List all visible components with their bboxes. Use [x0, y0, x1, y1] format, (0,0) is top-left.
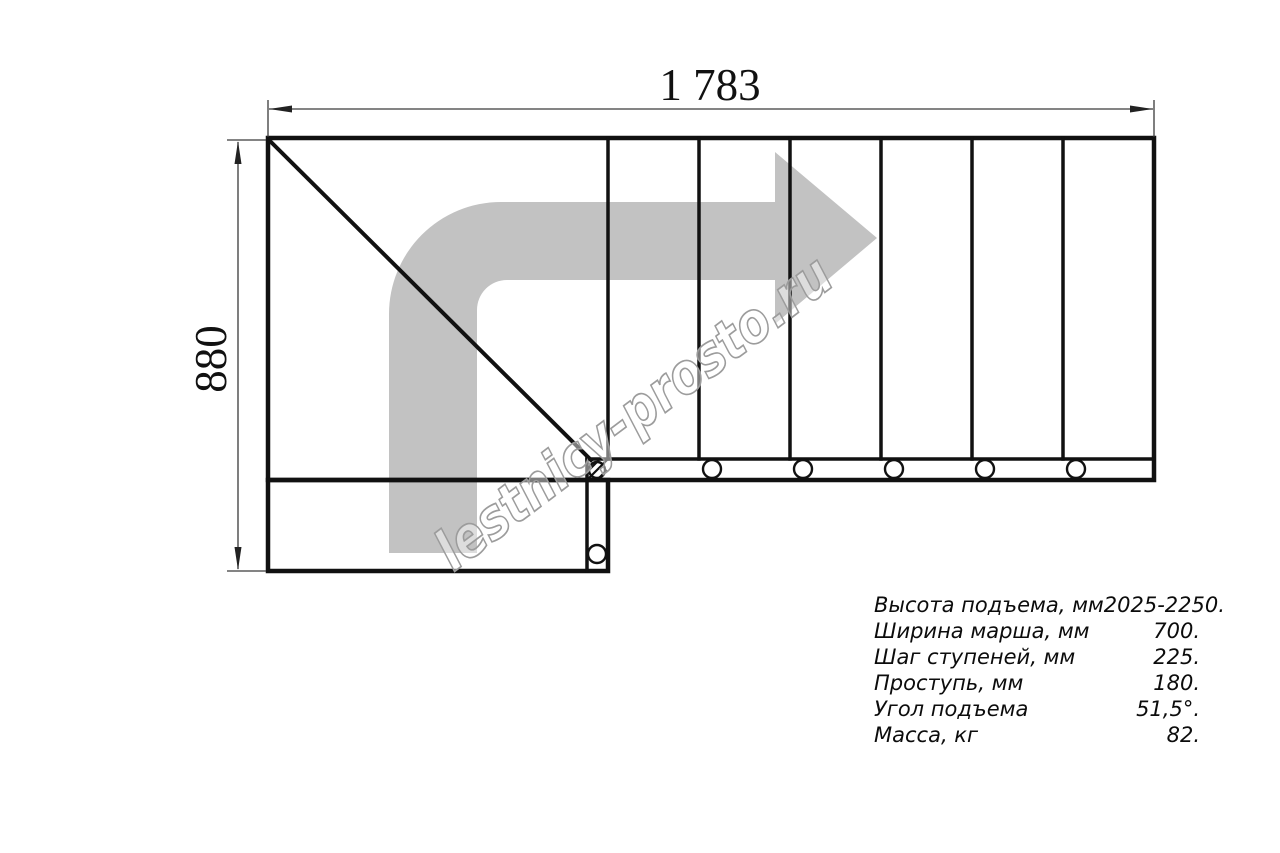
width-dimension-label: 1 783	[659, 60, 760, 110]
spec-row: Проступь, мм 180.	[874, 670, 1200, 696]
spec-row: Масса, кг 82.	[874, 722, 1200, 748]
spec-row: Шаг ступеней, мм 225.	[874, 644, 1200, 670]
spec-label: Шаг ступеней, мм	[874, 644, 1075, 670]
baluster-circle	[588, 545, 606, 563]
baluster-circles	[588, 460, 1085, 563]
baluster-circle	[885, 460, 903, 478]
baluster-circle	[794, 460, 812, 478]
spec-label: Угол подъема	[874, 696, 1028, 722]
spec-label: Проступь, мм	[874, 670, 1023, 696]
spec-table: Высота подъема, мм 2025-2250. Ширина мар…	[874, 592, 1200, 748]
dim-arrow-top	[235, 141, 242, 164]
baluster-circle	[1067, 460, 1085, 478]
dim-arrow-left	[269, 106, 292, 113]
stair-drawing-page: 1 783 880 lestnicy-prosto.ru Высота подъ…	[0, 0, 1280, 853]
spec-label: Высота подъема, мм	[874, 592, 1104, 618]
spec-row: Угол подъема 51,5°.	[874, 696, 1200, 722]
spec-value: 51,5°.	[1136, 696, 1200, 722]
baluster-circle	[976, 460, 994, 478]
direction-arrow	[389, 152, 877, 553]
spec-row: Высота подъема, мм 2025-2250.	[874, 592, 1200, 618]
spec-value: 180.	[1153, 670, 1200, 696]
baluster-circle	[703, 460, 721, 478]
spec-label: Масса, кг	[874, 722, 978, 748]
spec-value: 225.	[1153, 644, 1200, 670]
spec-value: 2025-2250.	[1104, 592, 1225, 618]
spec-value: 700.	[1153, 618, 1200, 644]
spec-row: Ширина марша, мм 700.	[874, 618, 1200, 644]
spec-value: 82.	[1167, 722, 1200, 748]
dim-arrow-bottom	[235, 547, 242, 570]
dim-arrow-right	[1130, 106, 1153, 113]
watermark-text: lestnicy-prosto.ru	[423, 243, 845, 584]
height-dimension-label: 880	[186, 325, 236, 393]
spec-label: Ширина марша, мм	[874, 618, 1090, 644]
